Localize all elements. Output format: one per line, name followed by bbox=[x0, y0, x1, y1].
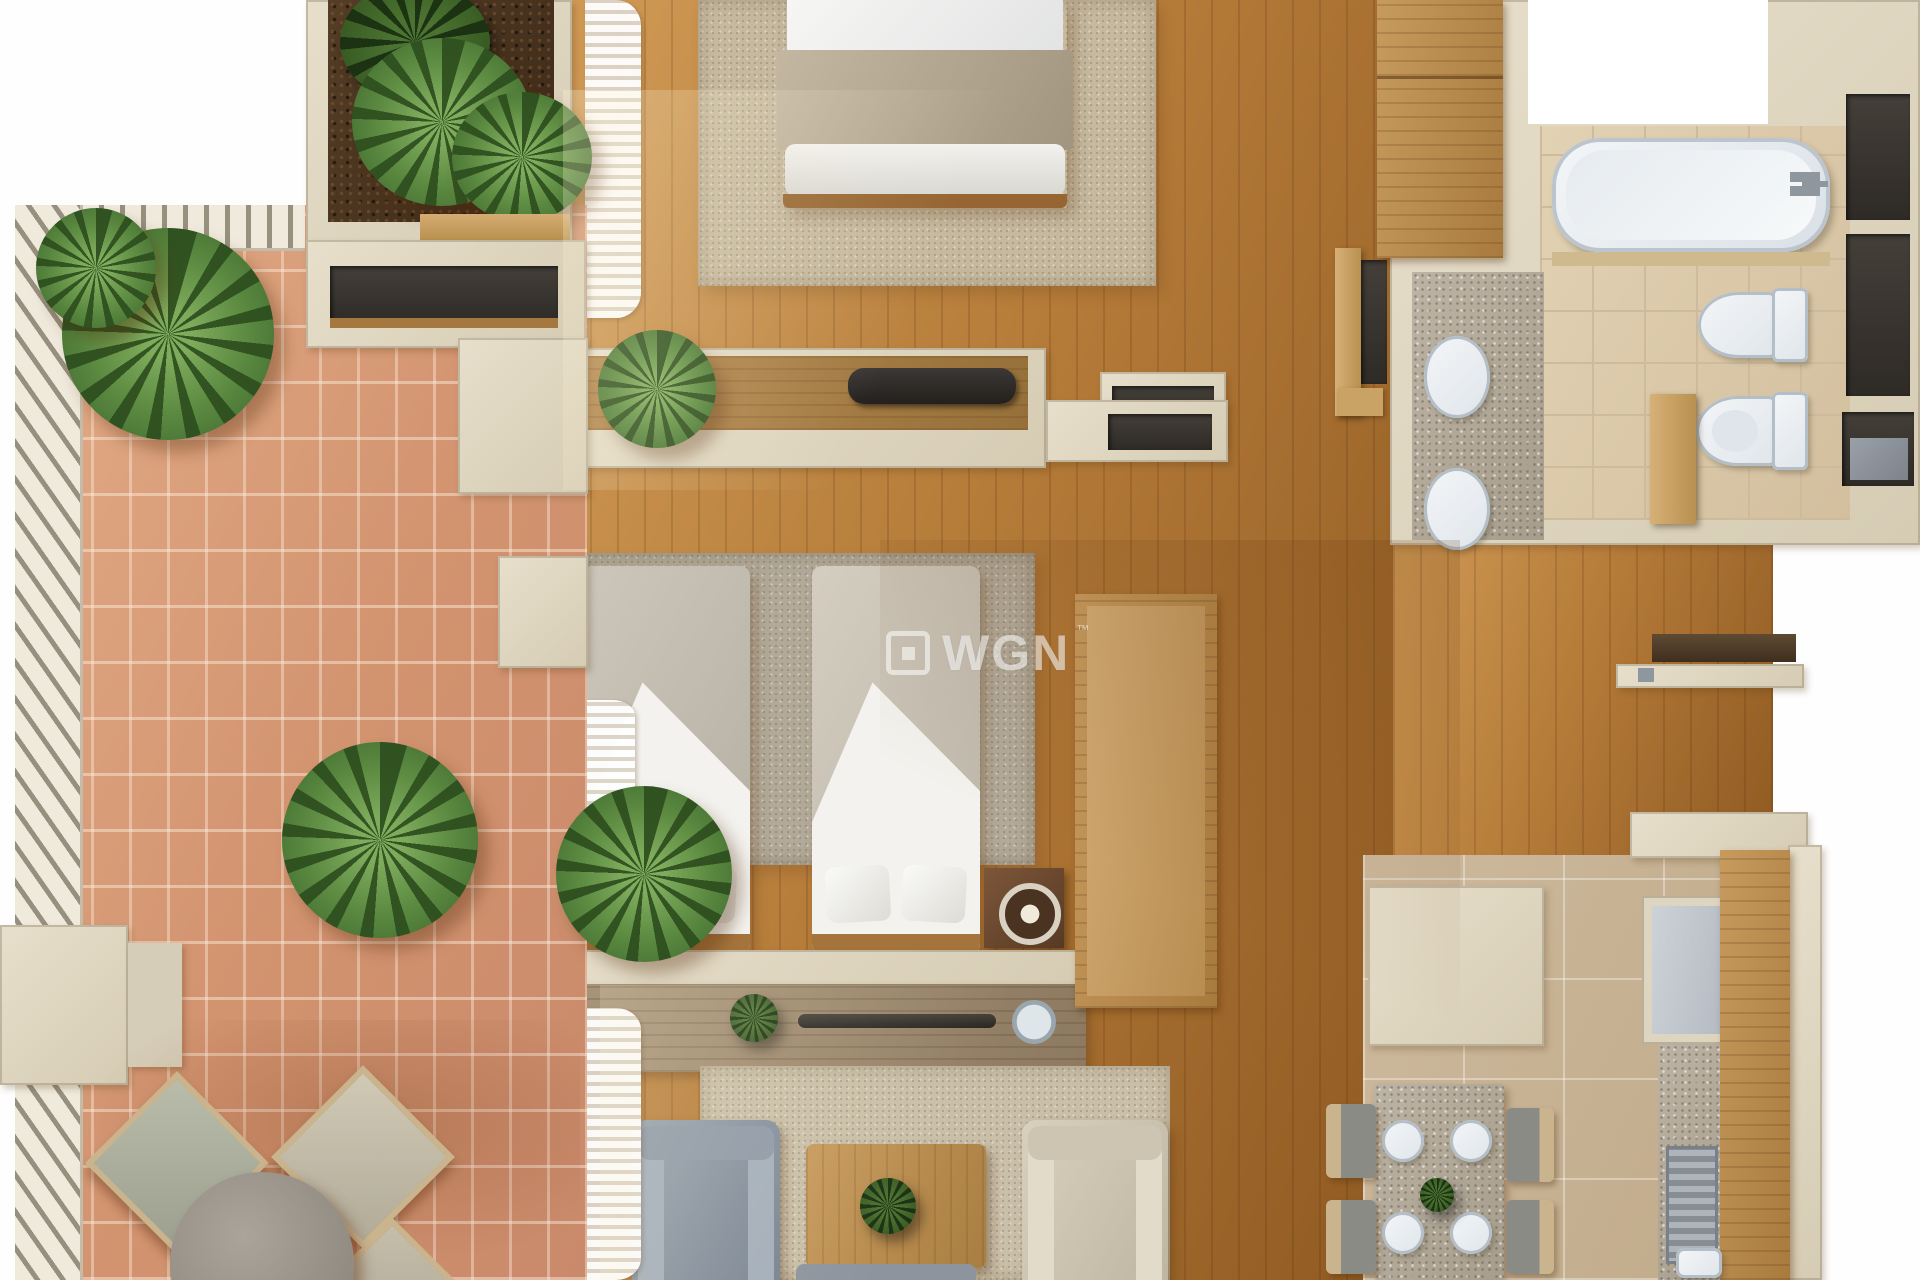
kitchen-cabinets bbox=[1720, 850, 1790, 1280]
floor-plan-render: WGN ™ bbox=[0, 0, 1920, 1280]
watermark-text: WGN bbox=[942, 624, 1070, 682]
dining-chair bbox=[1326, 1104, 1376, 1178]
kitchen-sink bbox=[1676, 1248, 1722, 1278]
master-bed bbox=[783, 0, 1067, 208]
speaker-nightstand bbox=[984, 868, 1064, 948]
wall-niche bbox=[1846, 234, 1910, 396]
master-wardrobe bbox=[1377, 0, 1503, 258]
wall-niche bbox=[1846, 94, 1910, 220]
bidet-tank bbox=[1772, 392, 1808, 470]
terrace-wall-mass bbox=[458, 338, 588, 494]
twin-dresser bbox=[570, 984, 1086, 1072]
sink-basin bbox=[1424, 468, 1490, 550]
storage-recess bbox=[330, 266, 558, 324]
plate bbox=[1382, 1120, 1424, 1162]
plate bbox=[1450, 1120, 1492, 1162]
terrace-utility-step bbox=[128, 943, 182, 1067]
speaker-ring-icon bbox=[999, 883, 1061, 945]
planter-palm bbox=[452, 92, 592, 222]
bed-base bbox=[783, 194, 1067, 208]
terrace-palm bbox=[36, 208, 156, 328]
shelf-bracket-icon bbox=[1638, 668, 1654, 682]
dresser-dish bbox=[1012, 1000, 1056, 1044]
kitchen-island bbox=[1368, 886, 1544, 1046]
exterior-notch bbox=[1528, 0, 1768, 124]
master-curtain bbox=[585, 0, 641, 318]
toilet-tank bbox=[1772, 288, 1808, 362]
console-palm-plant bbox=[598, 330, 716, 448]
dining-chair bbox=[1506, 1200, 1554, 1274]
terrace-utility-box bbox=[0, 925, 128, 1085]
plate bbox=[1450, 1212, 1492, 1254]
stove-grill bbox=[1666, 1146, 1718, 1264]
armchair-back bbox=[1028, 1126, 1162, 1160]
planter-sill bbox=[420, 214, 570, 240]
wardrobe-divider bbox=[1377, 76, 1503, 79]
door-stop bbox=[1337, 388, 1383, 416]
armchair-back bbox=[638, 1126, 774, 1160]
bed-duvet-roll bbox=[785, 144, 1065, 196]
sink-basin bbox=[1424, 336, 1490, 418]
dresser-handle bbox=[798, 1014, 996, 1028]
watermark: WGN ™ bbox=[886, 624, 1089, 682]
bathtub-faucet-icon bbox=[1790, 172, 1820, 182]
hall-door-gap bbox=[1361, 260, 1387, 384]
twin-wardrobe-panel bbox=[1087, 606, 1205, 996]
bathtub-basin bbox=[1566, 150, 1816, 240]
wgn-square-logo-icon bbox=[886, 631, 930, 675]
table-centerpiece-plant bbox=[1420, 1178, 1454, 1212]
tub-ledge bbox=[1552, 252, 1830, 266]
armchair-beige bbox=[1022, 1120, 1168, 1280]
plate bbox=[1382, 1212, 1424, 1254]
pillow bbox=[825, 864, 892, 923]
pillow bbox=[901, 864, 968, 923]
entry-shelf-shadow bbox=[1652, 634, 1796, 662]
dresser-plant bbox=[730, 994, 778, 1042]
cabinet-box bbox=[1850, 438, 1908, 480]
bathroom-door bbox=[1650, 394, 1696, 524]
bed-sheet bbox=[787, 0, 1063, 55]
watermark-trademark: ™ bbox=[1076, 622, 1089, 637]
toilet-bowl bbox=[1698, 292, 1780, 358]
living-curtain bbox=[585, 1008, 641, 1280]
recess-ledge bbox=[330, 318, 558, 328]
dining-chair bbox=[1326, 1200, 1376, 1274]
tv-tray bbox=[848, 368, 1016, 404]
armchair-blue bbox=[632, 1120, 780, 1280]
sofa-edge bbox=[796, 1264, 976, 1280]
bed-blanket bbox=[777, 50, 1073, 150]
dining-chair bbox=[1506, 1108, 1554, 1182]
terrace-palm bbox=[282, 742, 478, 938]
terrace-palm bbox=[556, 786, 732, 962]
bidet-basin bbox=[1712, 410, 1758, 452]
terrace-wall-block bbox=[498, 556, 588, 668]
kitchen-wall-right bbox=[1788, 845, 1822, 1280]
wall-segment-slot bbox=[1108, 414, 1212, 450]
coffee-table-plant bbox=[860, 1178, 916, 1234]
